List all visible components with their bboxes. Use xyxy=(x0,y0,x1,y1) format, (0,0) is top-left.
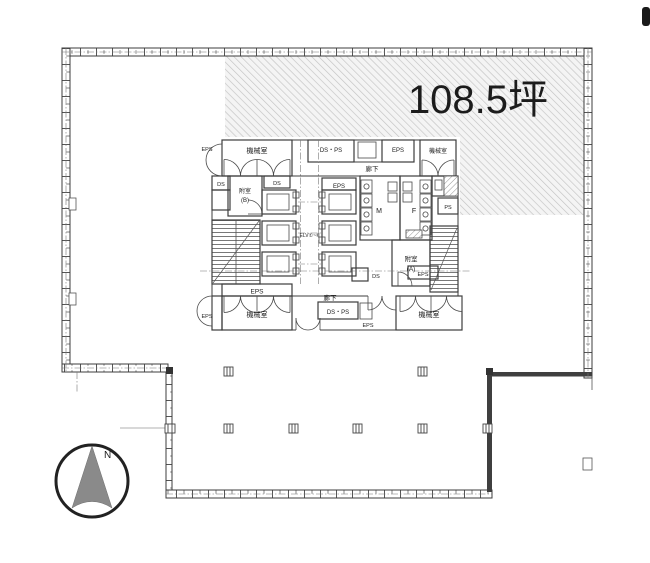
stairs-right xyxy=(430,226,458,292)
machine-room-label: 機械室 xyxy=(247,310,268,319)
eps-label: EPS xyxy=(250,289,264,296)
vestibule-a-label: 附室 xyxy=(405,254,419,263)
vestibule-b-label: 附室 xyxy=(239,187,251,195)
ps-label: PS xyxy=(444,205,452,211)
wall-bottom-right xyxy=(487,372,592,377)
wall-detail xyxy=(583,458,592,470)
ds-label: DS xyxy=(217,182,225,188)
compass-rose: N xyxy=(56,445,128,517)
column xyxy=(418,367,427,376)
column xyxy=(353,424,362,433)
compass-north-label: N xyxy=(104,450,111,461)
corner-mark xyxy=(642,7,650,26)
column xyxy=(418,424,427,433)
toilet-men-label: M xyxy=(376,208,382,215)
building-core: EPS 機械室 DS・PS EPS 機械室 廊下 DS 附室 (B) DS EP… xyxy=(197,137,470,333)
area-size-label: 108.5坪 xyxy=(408,78,548,122)
stairs-left xyxy=(212,220,260,284)
vestibule-b-suffix: (B) xyxy=(241,198,249,204)
corridor-label: 廊下 xyxy=(366,164,380,173)
wall-lower-left xyxy=(166,372,172,498)
eps-label: EPS xyxy=(333,184,345,190)
shaft-hatched xyxy=(444,176,458,196)
floorplan-drawing: 108.5坪 xyxy=(0,0,650,563)
column xyxy=(483,424,492,433)
machine-room-label: 機械室 xyxy=(429,147,447,155)
corner-column xyxy=(486,368,493,375)
eps-label: EPS xyxy=(392,148,404,154)
corner-column xyxy=(166,367,173,374)
column xyxy=(224,424,233,433)
shaft-hatched-small xyxy=(406,230,422,238)
vestibule-a-suffix: (A) xyxy=(407,266,416,273)
column xyxy=(224,367,233,376)
ds-label: DS xyxy=(273,181,281,187)
eps-label: EPS xyxy=(417,272,428,278)
elevator-label: ELV①~⑥ xyxy=(300,233,321,239)
toilet-women-label: F xyxy=(412,208,416,215)
wall-detail xyxy=(69,293,76,305)
columns xyxy=(165,367,492,433)
column xyxy=(165,424,175,433)
corridor-label: 廊下 xyxy=(324,293,338,302)
machine-room-label: 機械室 xyxy=(247,146,268,155)
machine-room-label: 機械室 xyxy=(419,310,440,319)
eps-label: EPS xyxy=(201,314,212,320)
column xyxy=(289,424,298,433)
wall-detail xyxy=(69,198,76,210)
eps-label: EPS xyxy=(201,147,212,153)
ds-ps-label: DS・PS xyxy=(320,148,342,154)
ds-ps-label: DS・PS xyxy=(327,310,349,316)
eps-label: EPS xyxy=(362,323,373,329)
floorplan-canvas: 108.5坪 xyxy=(0,0,650,563)
ds-label: DS xyxy=(372,274,380,280)
